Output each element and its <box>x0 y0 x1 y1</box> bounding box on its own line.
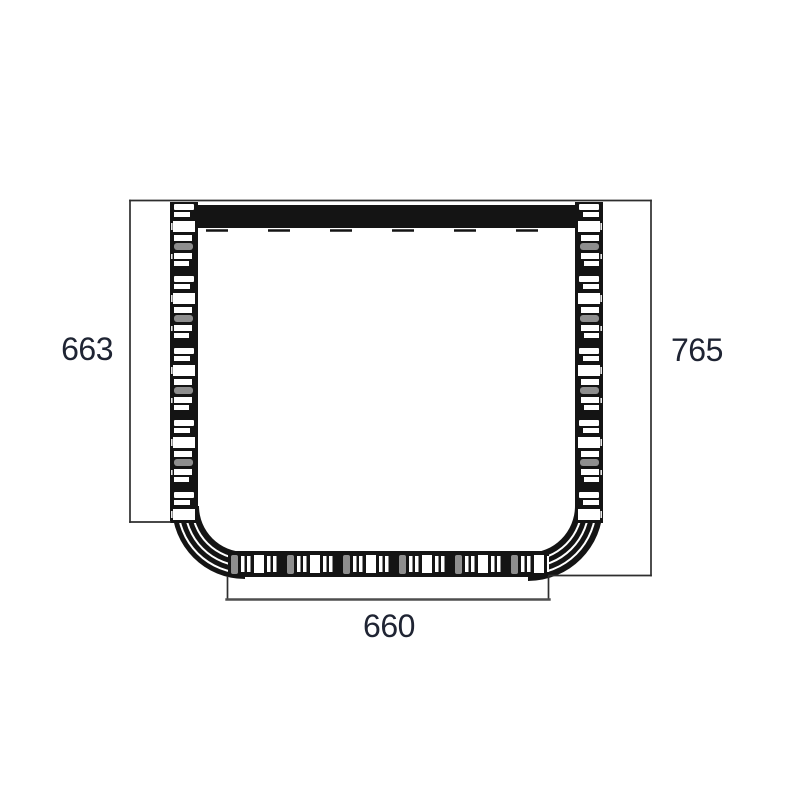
top-rail <box>197 205 577 231</box>
dimension-label-right: 765 <box>671 332 723 368</box>
dimensions: 663 765 660 <box>61 201 723 645</box>
radiator-body <box>170 202 603 581</box>
right-rail <box>575 202 603 523</box>
top-rail-bar <box>197 205 577 228</box>
dimension-label-left: 663 <box>61 331 113 367</box>
bottom-rail <box>228 551 549 577</box>
left-rail <box>170 202 198 523</box>
dimension-bottom: 660 <box>227 577 550 644</box>
dimension-left: 663 <box>61 201 170 523</box>
dimension-label-bottom: 660 <box>363 608 415 644</box>
towel-rail-dimension-drawing: 663 765 660 <box>0 0 800 800</box>
drawing-canvas: 663 765 660 <box>0 0 800 800</box>
